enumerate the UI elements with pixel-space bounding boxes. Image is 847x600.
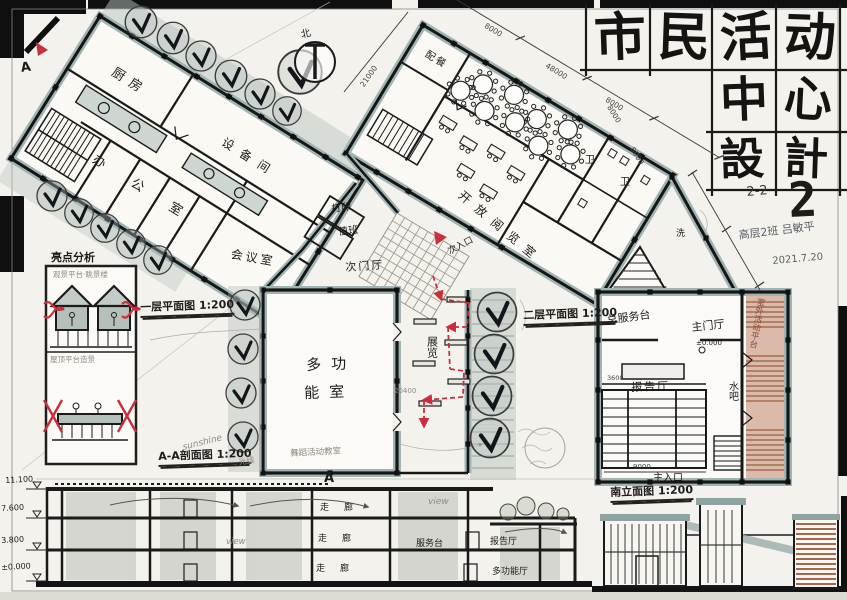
section-mark-a1: A (20, 61, 32, 76)
level-2f: 3.800 (1, 536, 24, 546)
secondary-entrance-label: 次入口 (447, 236, 475, 257)
title-char-4: 动 (783, 11, 841, 65)
room-main-hall: 主门厅 (691, 319, 725, 334)
view-note-2: view (226, 538, 246, 547)
room-exhibition: 展览 (426, 336, 438, 358)
level-roof: 11.100 (5, 476, 33, 486)
section-corridor-2: 走廊 (318, 535, 366, 544)
dim-top-a: 8000 (483, 22, 503, 39)
dim-bottom: 9000 (633, 464, 651, 471)
title-char-2: 民 (657, 11, 715, 65)
north-label: 北 (300, 29, 312, 41)
title-char-3: 活 (719, 11, 778, 66)
analysis-caption-bottom: 屋顶平台造景 (50, 356, 95, 364)
date: 2021.7.20 (772, 253, 824, 268)
drawing-sheet: 市 民 活 动 中 心 設 計 2-2 2 高层2班 吕敏平 2021.7.20… (0, 0, 847, 600)
sheet-number: 2 (787, 174, 819, 226)
section-mark-a2: A (324, 472, 334, 486)
dim-seat: 3600 (607, 375, 624, 382)
section-lecture: 报告厅 (490, 538, 517, 547)
room-wc-a: 卫 (585, 156, 595, 167)
section-corridor-1: 走廊 (320, 504, 368, 513)
title-elevation: 南立面图 1:200 (610, 484, 693, 502)
section-multi: 多功能厅 (492, 568, 528, 577)
room-wash: 洗 (676, 230, 685, 239)
room-sub-hall: 次门厅 (345, 259, 385, 273)
room-open-reading: 开放阅览室 (456, 189, 545, 266)
room-print: 打印 (331, 203, 352, 216)
sheet-code: 2-2 (746, 184, 768, 199)
room-meeting: 会议室 (230, 248, 277, 268)
deck-label: 室外活动平台 (747, 297, 765, 349)
room-kitchen: 厨房 (109, 66, 150, 99)
level-ground: ±0.000 (1, 562, 31, 572)
hall-level: ±0.000 (696, 340, 722, 347)
section-service: 服务台 (416, 540, 443, 549)
light-note: 光线 (238, 456, 255, 467)
label-layer: 市 民 活 动 中 心 設 計 2-2 2 高层2班 吕敏平 2021.7.20… (0, 0, 847, 600)
analysis-caption-top: 观景平台·眺景楼 (53, 271, 108, 279)
dim-note: 20400 (394, 388, 416, 395)
title-floor-plan: 一层平面图 1:200 (140, 299, 234, 318)
view-note-1: view (428, 498, 449, 507)
title-char-1: 市 (593, 11, 651, 65)
room-multi-line1: 多功 (306, 356, 357, 373)
dim-facade-b: 8000 (628, 146, 645, 166)
room-water-bar: 水吧 (726, 381, 737, 401)
room-offices: 办公室 (90, 153, 212, 236)
dance-note: 舞蹈活动教室 (290, 447, 341, 459)
title-char-7: 設 (719, 137, 777, 183)
title-second-floor: 二层平面图 1:200 (523, 307, 617, 326)
level-3f: 7.600 (1, 504, 24, 514)
room-lecture: 报告厅 (631, 381, 670, 394)
title-char-6: 心 (783, 75, 841, 126)
dim-total: 48000 (544, 62, 569, 81)
room-pantry: 配餐 (423, 50, 449, 71)
section-corridor-3: 走廊 (316, 565, 364, 574)
title-analysis: 亮点分析 (51, 252, 95, 266)
author-line: 高层2班 吕敏平 (738, 221, 815, 242)
title-char-5: 中 (719, 75, 777, 125)
room-wc-b: 卫 (620, 178, 630, 189)
room-multi-line2: 能室 (304, 384, 355, 401)
dim-left: 21000 (359, 64, 379, 88)
room-duty: 值班 (338, 226, 359, 239)
room-equipment: 设备间 (219, 136, 279, 180)
